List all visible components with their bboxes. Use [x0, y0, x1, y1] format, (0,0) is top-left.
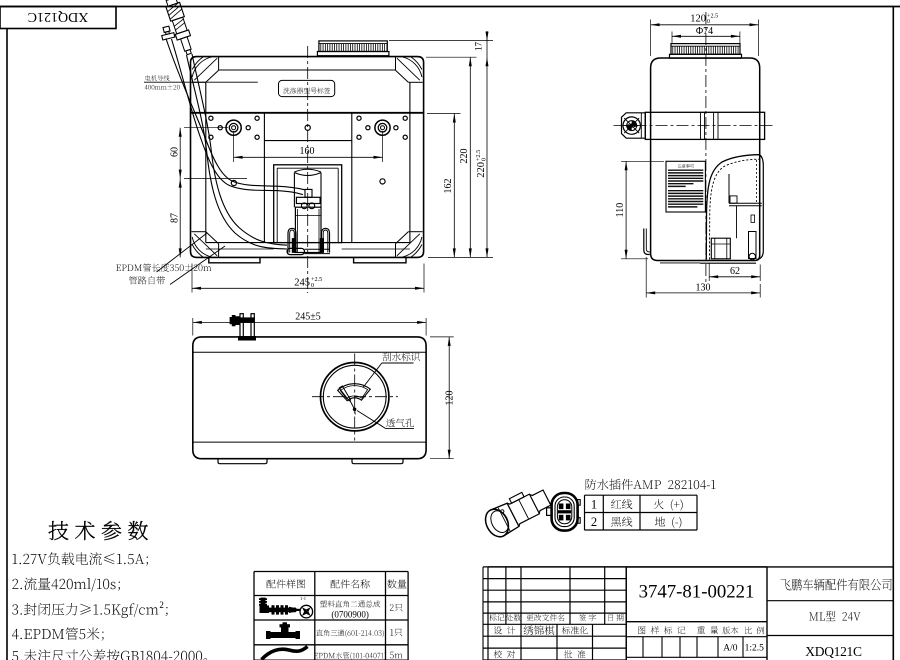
svg-text:245±5: 245±5: [295, 311, 321, 322]
svg-text:1: 1: [591, 498, 597, 512]
svg-text:162: 162: [443, 179, 454, 194]
svg-text:62: 62: [730, 266, 740, 277]
svg-text:120: 120: [690, 14, 706, 25]
svg-text:A/0: A/0: [723, 644, 738, 654]
svg-text:XDQ121C: XDQ121C: [28, 9, 89, 24]
svg-text:0: 0: [707, 18, 710, 25]
svg-text:245: 245: [294, 277, 310, 288]
svg-text:2: 2: [159, 600, 164, 610]
svg-text:60: 60: [169, 147, 180, 157]
svg-text:0: 0: [311, 282, 314, 289]
svg-text:1:2.5: 1:2.5: [745, 644, 765, 654]
svg-text:220: 220: [459, 149, 470, 164]
svg-text:220: 220: [476, 162, 487, 178]
svg-text:110: 110: [615, 203, 626, 218]
svg-text:1-1: 1-1: [300, 596, 306, 601]
svg-text:3747-81-00221: 3747-81-00221: [639, 582, 755, 603]
svg-text:2: 2: [591, 515, 597, 529]
svg-text:0: 0: [481, 158, 488, 161]
svg-text:87: 87: [169, 213, 180, 223]
svg-text:(0700900): (0700900): [331, 610, 369, 620]
svg-text:Φ74: Φ74: [696, 26, 713, 37]
svg-text:130: 130: [696, 282, 711, 293]
svg-text:160: 160: [300, 146, 315, 157]
svg-text:120: 120: [444, 391, 455, 406]
svg-text:XDQ121C: XDQ121C: [805, 644, 862, 659]
svg-text:17: 17: [474, 42, 484, 52]
